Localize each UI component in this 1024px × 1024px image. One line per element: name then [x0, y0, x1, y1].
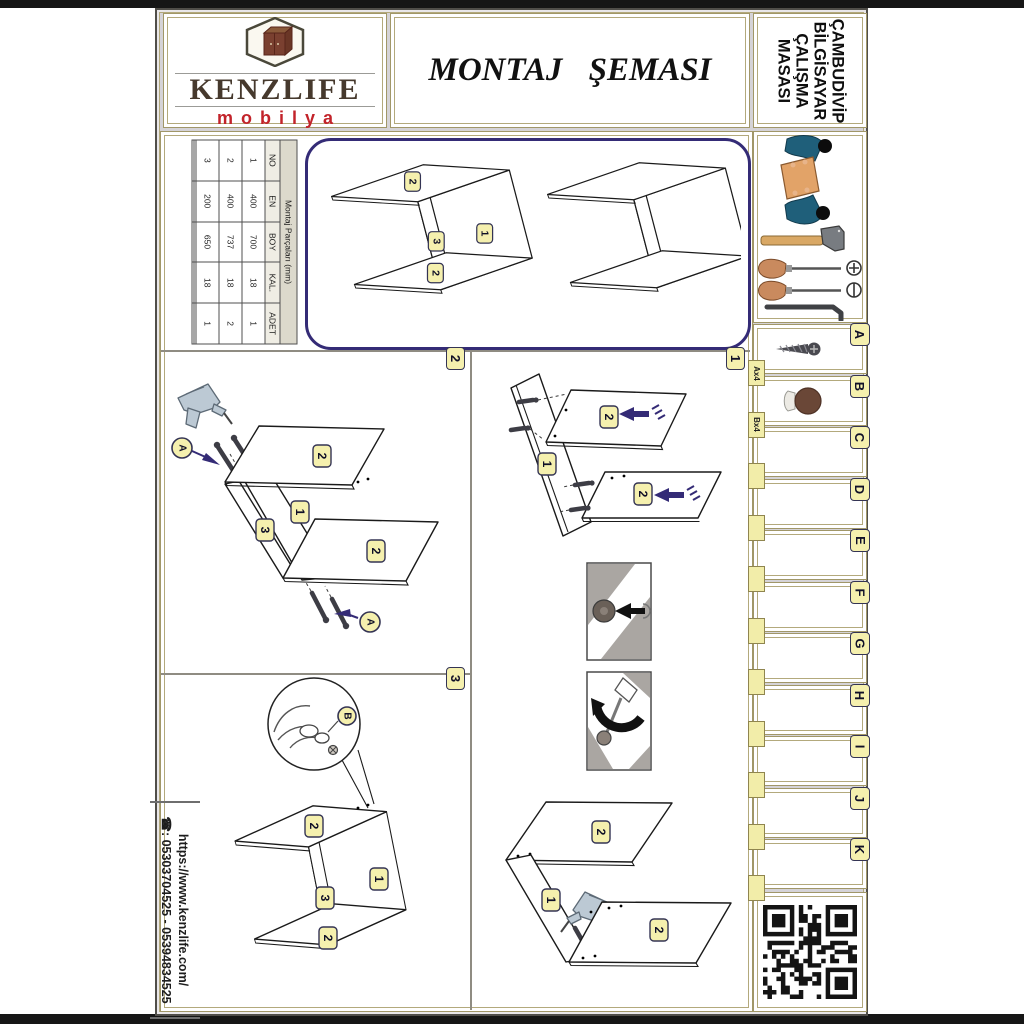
brand-logo-box: KENZLIFE mobilya [163, 13, 387, 128]
panel-badge: 2 [592, 821, 610, 843]
panel-badge: 1 [370, 868, 388, 890]
brand-name: KENZLIFE [164, 75, 386, 105]
panel-badge: 3 [428, 232, 444, 251]
product-line: ÇAMBUDİVİP [828, 15, 846, 127]
part-box-g: G [753, 633, 867, 683]
part-qty-tab: Ax4 [748, 360, 765, 386]
part-box-c: C [753, 427, 867, 477]
hardware-b-badge: B [338, 707, 356, 725]
panel-badge-label: 1 [544, 897, 558, 904]
col-header: ADET [265, 303, 280, 344]
product-name-box: ÇAMBUDİVİP BİLGİSAYAR ÇALIŞMA MASASI [753, 13, 867, 128]
allen-key-icon [767, 307, 841, 320]
table-row: 2 400 737 18 2 [219, 140, 242, 344]
panel-badge-label: 2 [636, 491, 650, 498]
sheet-title-box: MONTAJ ŞEMASI [390, 13, 750, 128]
panel-badge-label: 1 [293, 509, 307, 516]
parts-table: Montaj Parçaları (mm) NO EN BOY KAL. ADE… [192, 140, 298, 345]
part-letter-badge: H [850, 684, 870, 707]
panel-badge-label: 2 [652, 927, 666, 934]
step-badge-2: 2 [446, 347, 465, 370]
hexagon-cabinet-logo-icon [240, 17, 310, 67]
part-letter-badge: J [850, 787, 870, 810]
hardware-a-badge: A [172, 438, 192, 458]
panel-badge-label: 2 [315, 453, 329, 460]
panel-badge-label: 3 [258, 527, 272, 534]
part-box-j: J [753, 788, 867, 838]
step-1-diagram: 1 2 2 2 1 [471, 352, 750, 1008]
col-header: NO [265, 140, 280, 181]
panel-badge: 2 [650, 919, 668, 941]
hardware-badge-label: B [342, 712, 353, 719]
screwdriver-detail-inset [587, 672, 651, 770]
step-badge-1: 1 [726, 347, 745, 370]
parts-table-title: Montaj Parçaları (mm) [280, 140, 297, 344]
phone-text: ☎: 05303704525 - 05394834525 [160, 816, 175, 1003]
part-letter-badge: A [850, 323, 870, 346]
drill-icon [178, 384, 232, 428]
panel-badge: 1 [291, 501, 309, 523]
panel-badge: 1 [538, 453, 556, 475]
step-2-diagram: A A 2 1 3 2 [162, 352, 468, 672]
assembly-illustration-box [753, 131, 867, 323]
overview-left-table: 2 3 1 2 [332, 165, 533, 293]
product-line: BİLGİSAYAR [810, 15, 828, 127]
panel-badge: 3 [316, 887, 334, 909]
part-letter-badge: K [850, 838, 870, 861]
part-qty-tab [748, 463, 765, 489]
workers-icon [781, 136, 832, 224]
panel-badge-label: 2 [407, 179, 419, 185]
brand-subtitle: mobilya [164, 108, 386, 128]
part-letter-badge: F [850, 581, 870, 604]
part-letter-badge: D [850, 478, 870, 501]
cap-icon [762, 379, 842, 423]
panel-badge-label: 3 [430, 238, 442, 244]
workers-and-tools-illustration [755, 133, 865, 321]
panel-badge: 2 [405, 172, 421, 191]
phone-icon: ☎ [160, 816, 174, 832]
part-qty-tab [748, 721, 765, 747]
panel-badge-label: 2 [369, 548, 383, 555]
website-text: https://www.kenzlife.com/ [177, 834, 191, 986]
panel-badge-label: 2 [602, 414, 616, 421]
table-row: 1 400 700 18 1 [242, 140, 265, 344]
product-line: ÇALIŞMA [792, 15, 810, 127]
part-letter-badge: E [850, 529, 870, 552]
product-name: ÇAMBUDİVİP BİLGİSAYAR ÇALIŞMA MASASI [774, 15, 847, 127]
page-title: MONTAJ ŞEMASI [428, 52, 711, 89]
table-row [194, 140, 196, 344]
screw-icon [762, 327, 842, 371]
part-qty-tab [748, 515, 765, 541]
part-letter-badge: G [850, 632, 870, 655]
part-qty-tab: Bx4 [748, 412, 765, 438]
top-edge-bar [0, 0, 1024, 8]
panel-badge: 2 [427, 263, 443, 282]
hardware-badge-label: A [365, 618, 376, 625]
col-header: KAL. [265, 262, 280, 303]
panel-badge: 2 [305, 815, 323, 837]
panel-badge: 2 [634, 483, 652, 505]
panel-badge: 3 [256, 519, 274, 541]
phillips-screwdriver-icon [759, 259, 862, 278]
part-qty-tab [748, 875, 765, 901]
part-box-i: I [753, 736, 867, 786]
part-box-h: H [753, 685, 867, 735]
part-letter-badge: C [850, 426, 870, 449]
hardware-a-badge: A [360, 612, 380, 632]
hammer-icon [761, 226, 844, 251]
part-qty-tab [748, 772, 765, 798]
qr-code [763, 905, 857, 999]
panel-badge-label: 1 [479, 231, 491, 237]
part-box-a: A Ax4 [753, 324, 867, 374]
hardware-badge-label: A [177, 444, 188, 451]
col-header: BOY [265, 222, 280, 263]
panel-badge-label: 2 [594, 829, 608, 836]
qr-code-box [753, 892, 867, 1012]
part-qty-tab [748, 824, 765, 850]
pointer-arrow-icon [202, 453, 220, 465]
step-3-diagram: B 2 3 1 2 [162, 674, 468, 1008]
part-box-b: B Bx4 [753, 376, 867, 426]
cap-detail-inset [587, 563, 651, 660]
panel-badge: 1 [542, 889, 560, 911]
contact-block: https://www.kenzlife.com/ ☎: 05303704525… [150, 801, 200, 1019]
step-badge-3: 3 [446, 667, 465, 690]
panel-badge: 2 [600, 406, 618, 428]
part-qty-tab [748, 669, 765, 695]
flathead-screwdriver-icon [759, 281, 862, 300]
table-row [192, 140, 194, 344]
part-box-d: D [753, 479, 867, 529]
panel-badge: 2 [313, 445, 331, 467]
table-row: 3 200 650 18 1 [196, 140, 219, 344]
panel-badge: 2 [367, 540, 385, 562]
part-box-e: E [753, 530, 867, 580]
part-letter-badge: I [850, 735, 870, 758]
part-qty-tab [748, 618, 765, 644]
panel-badge-label: 1 [540, 461, 554, 468]
logo-divider [175, 106, 375, 107]
panel-badge-label: 2 [307, 823, 321, 830]
panel-badge-label: 1 [372, 876, 386, 883]
panel-badge: 1 [477, 224, 493, 243]
overview-right-table [548, 163, 741, 291]
panel-badge: 2 [319, 927, 337, 949]
panel-badge-label: 3 [318, 895, 332, 902]
part-qty-tab [748, 566, 765, 592]
part-box-f: F [753, 582, 867, 632]
panel-badge-label: 2 [321, 935, 335, 942]
col-header: EN [265, 181, 280, 222]
product-line: MASASI [774, 15, 792, 127]
assembled-overview-diagram: 2 3 1 2 [309, 142, 741, 340]
part-box-k: K [753, 839, 867, 889]
part-letter-badge: B [850, 375, 870, 398]
panel-badge-label: 2 [429, 270, 441, 276]
